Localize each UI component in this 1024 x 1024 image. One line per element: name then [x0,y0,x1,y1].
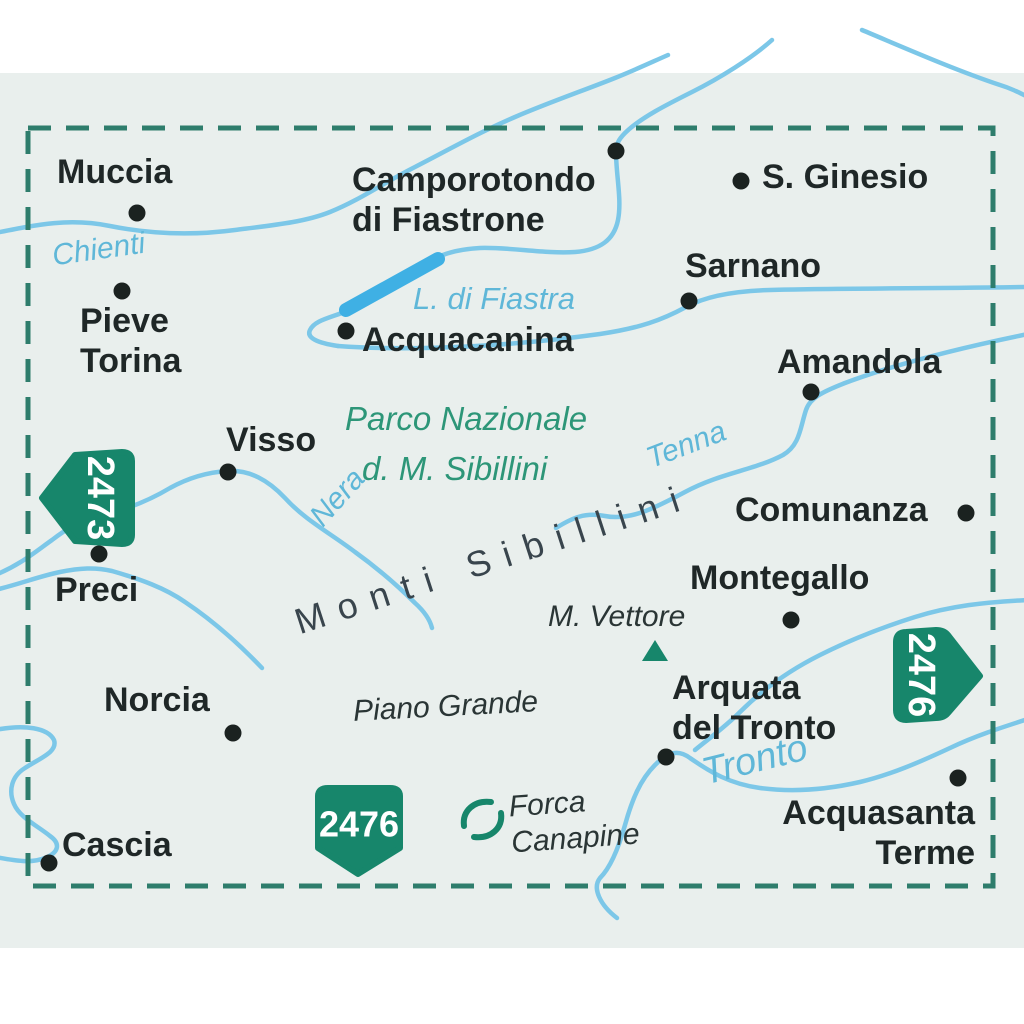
town-label-camporotondo-line2: di Fiastrone [352,200,596,240]
badge-right-2476: 2476 [896,630,980,720]
town-label-s-ginesio: S. Ginesio [762,157,928,197]
town-label-preci: Preci [55,570,138,610]
town-dot-norcia [225,725,242,742]
stream-top-right [862,30,1024,97]
lake-label: L. di Fiastra [413,281,575,317]
park-label-line2: d. M. Sibillini [362,450,547,488]
town-label-cascia: Cascia [62,825,172,865]
badge-left-number: 2473 [79,456,121,541]
badge-right-number: 2476 [900,633,942,718]
town-dot-acquacanina [338,323,355,340]
town-label-pieve-torina-line1: Pieve [80,301,181,341]
map-sheet-overview: 2473 2476 2476 Muccia Pieve Torina [0,0,1024,1024]
town-label-sarnano: Sarnano [685,246,821,286]
town-dot-muccia [129,205,146,222]
town-dot-sarnano [681,293,698,310]
badge-bottom-2476: 2476 [318,788,400,874]
town-dot-s-ginesio [733,173,750,190]
town-label-acquacanina: Acquacanina [362,320,574,360]
town-dot-amandola [803,384,820,401]
mountain-pass-icon [464,802,501,837]
town-label-muccia: Muccia [57,152,172,192]
park-label-line1: Parco Nazionale [345,400,587,438]
pass-label: Forca Canapine [508,781,641,862]
town-label-camporotondo: Camporotondo di Fiastrone [352,160,596,240]
town-label-visso: Visso [226,420,316,460]
town-dot-montegallo [783,612,800,629]
badge-left-2473: 2473 [42,452,132,544]
town-label-norcia: Norcia [104,680,210,720]
peak-label: M. Vettore [548,600,685,634]
town-dot-visso [220,464,237,481]
town-label-arquata: Arquata del Tronto [672,668,836,748]
town-label-pieve-torina-line2: Torina [80,341,181,381]
town-dot-cascia [41,855,58,872]
town-label-comunanza: Comunanza [735,490,928,530]
town-label-acquasanta-line1: Acquasanta [745,793,975,833]
town-dot-preci [91,546,108,563]
town-label-montegallo: Montegallo [690,558,869,598]
town-dot-acquasanta [950,770,967,787]
town-dot-pieve-torina [114,283,131,300]
town-label-amandola: Amandola [777,342,941,382]
town-label-pieve-torina: Pieve Torina [80,301,181,381]
town-label-acquasanta-line2: Terme [745,833,975,873]
peak-triangle-icon [642,640,668,661]
town-dot-comunanza [958,505,975,522]
town-dot-arquata [658,749,675,766]
town-label-camporotondo-line1: Camporotondo [352,160,596,200]
town-label-arquata-line1: Arquata [672,668,836,708]
town-label-acquasanta: Acquasanta Terme [745,793,975,873]
badge-bottom-number: 2476 [319,804,399,845]
town-dot-camporotondo [608,143,625,160]
